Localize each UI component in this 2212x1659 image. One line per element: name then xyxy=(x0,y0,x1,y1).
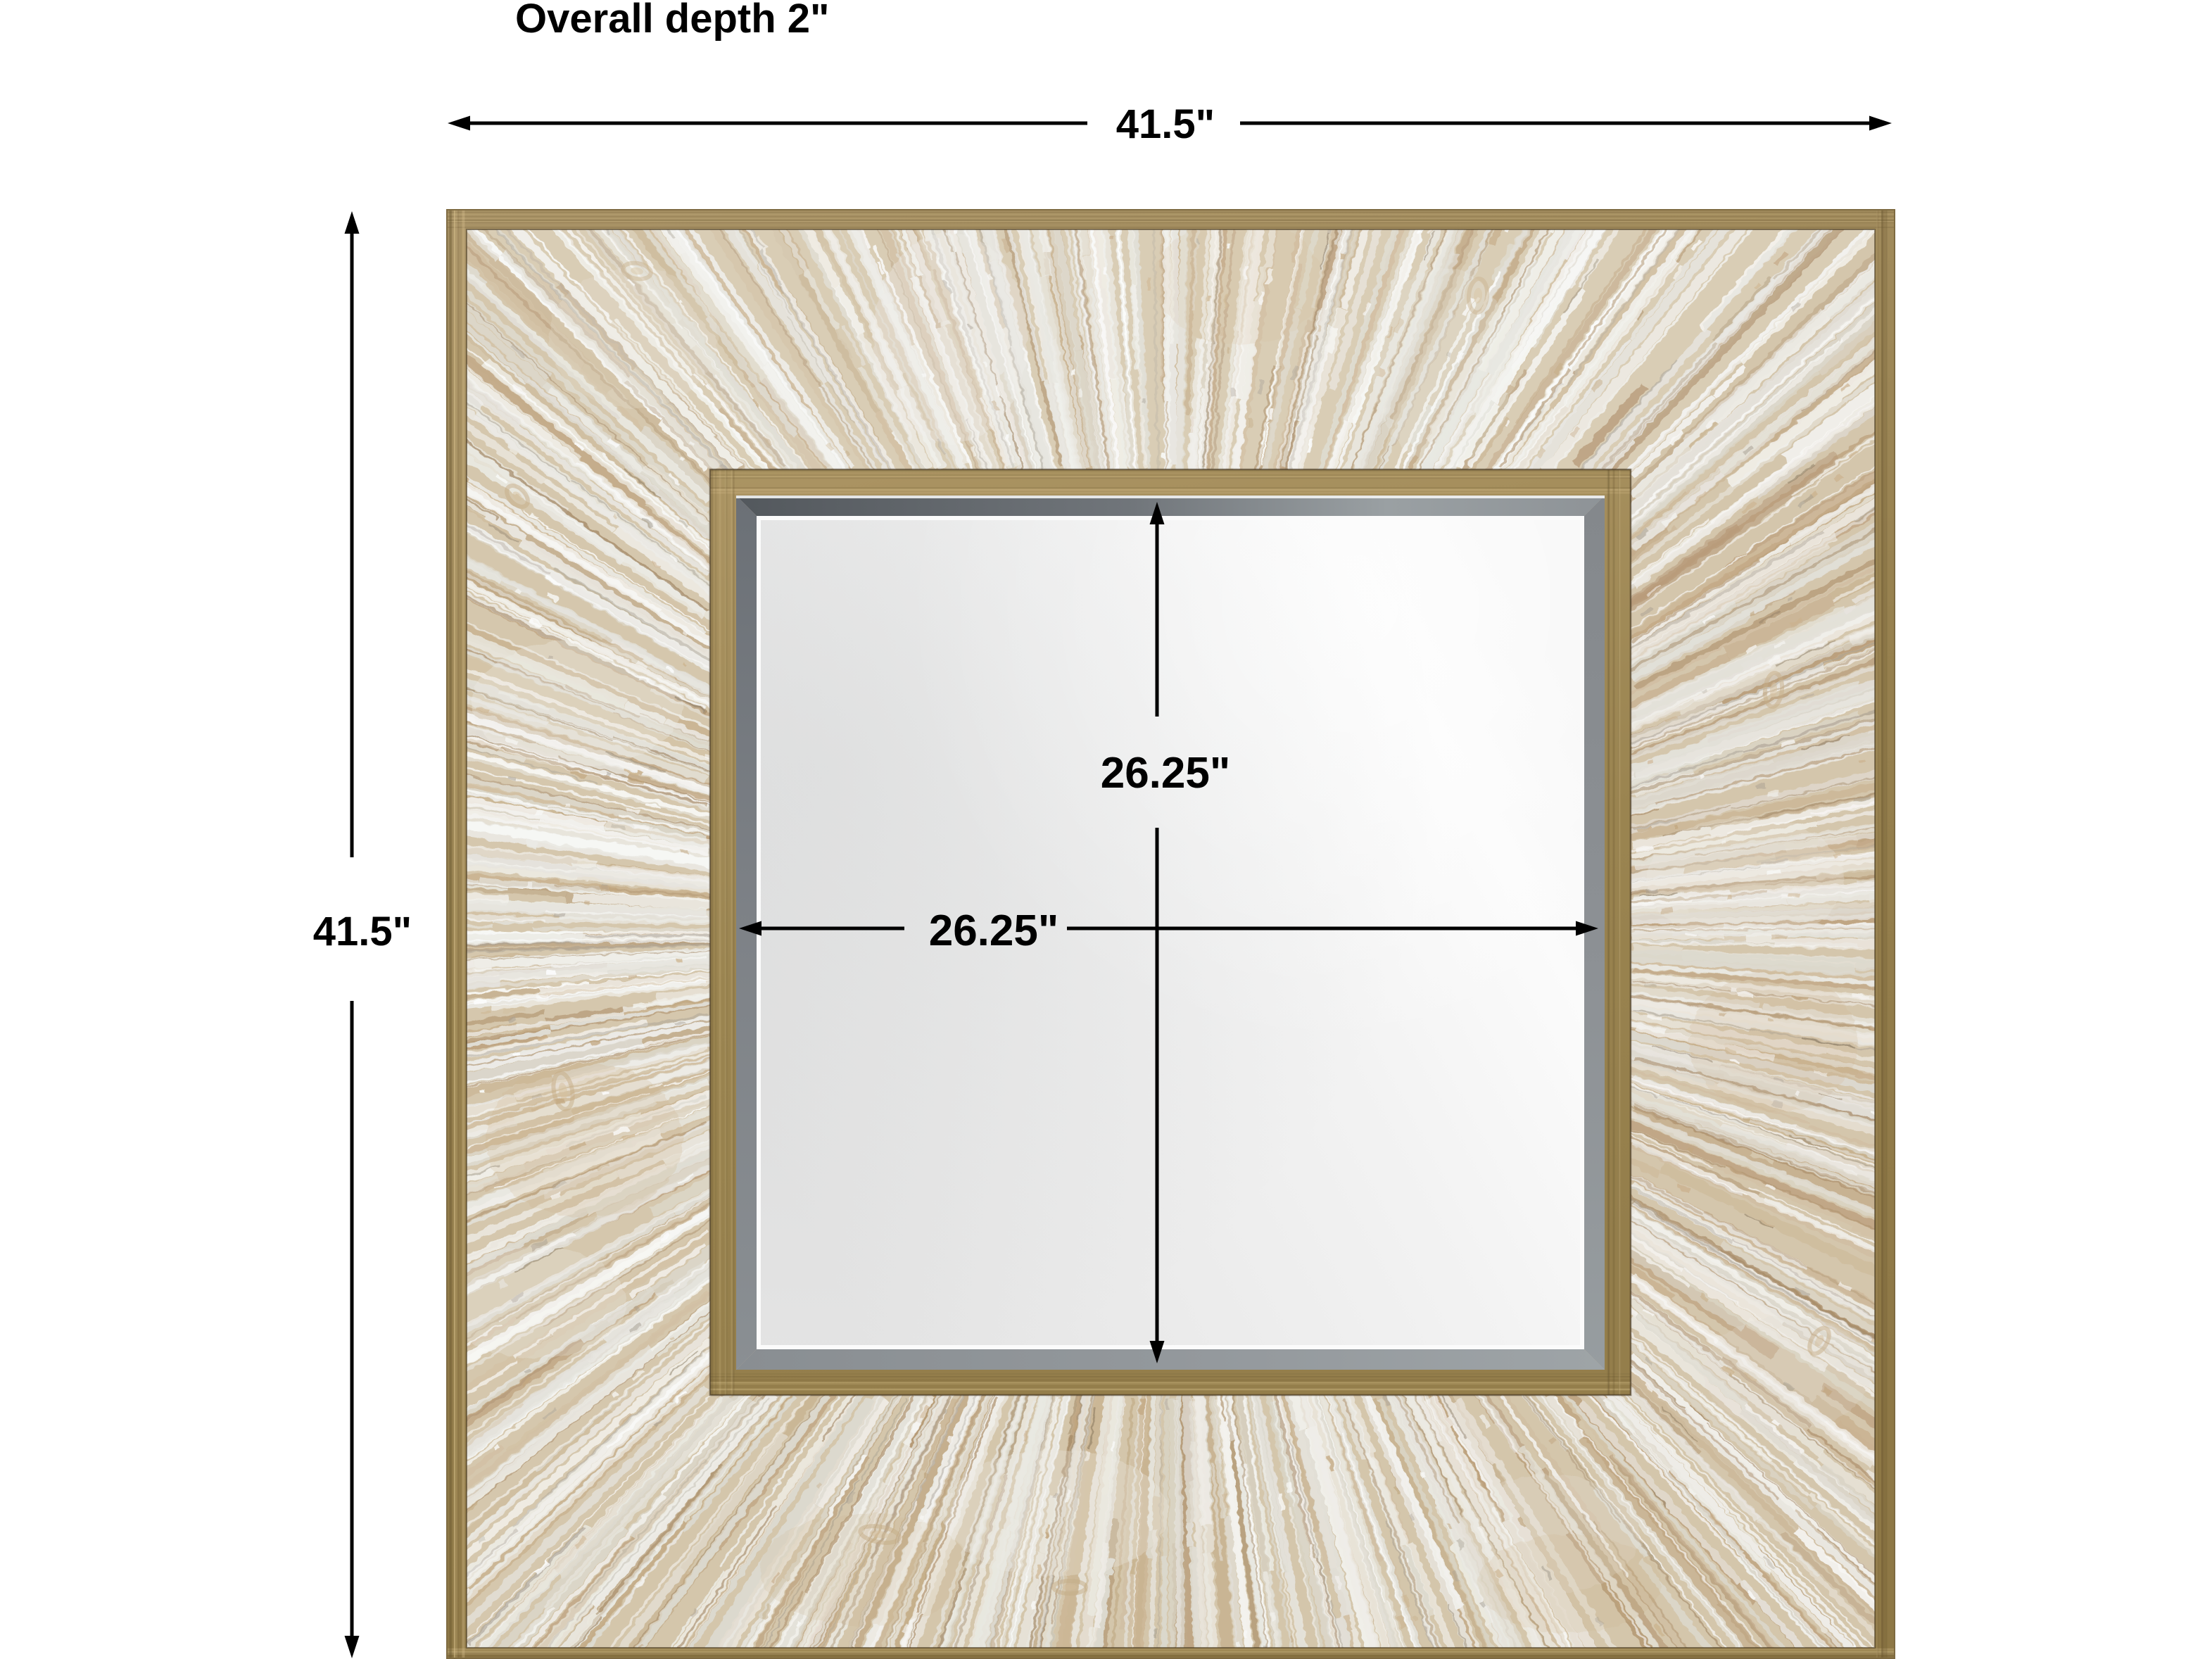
svg-text:26.25": 26.25" xyxy=(929,907,1059,955)
svg-text:41.5": 41.5" xyxy=(313,909,412,954)
svg-text:26.25": 26.25" xyxy=(1101,749,1231,797)
svg-text:Overall depth 2": Overall depth 2" xyxy=(515,0,830,42)
svg-text:41.5": 41.5" xyxy=(1116,101,1215,147)
